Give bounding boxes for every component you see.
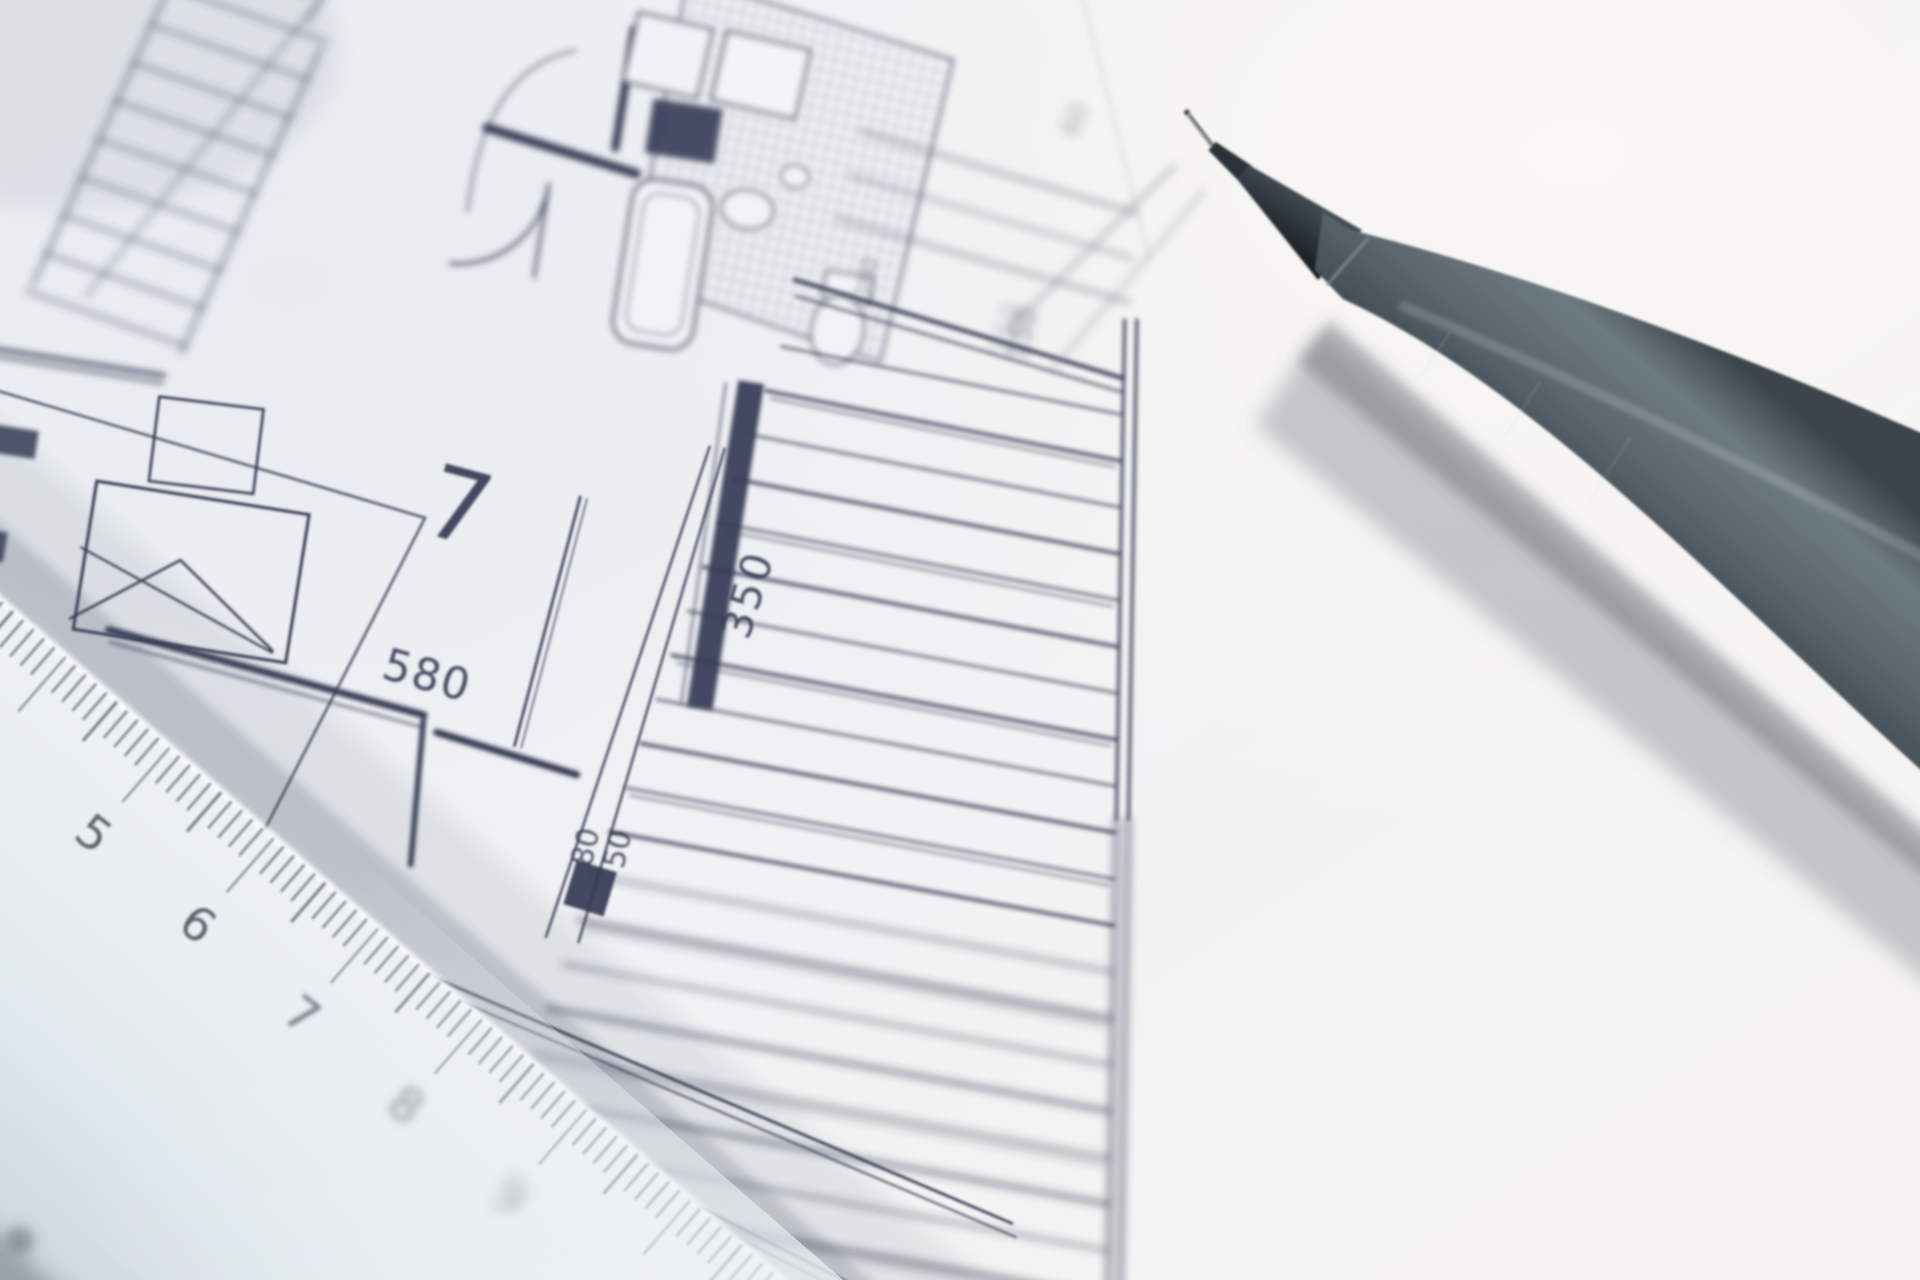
photo-scene: 380 7 [0, 0, 1920, 1280]
blueprint-photo: 380 7 [0, 0, 1920, 1280]
shower-fixture [624, 13, 713, 98]
